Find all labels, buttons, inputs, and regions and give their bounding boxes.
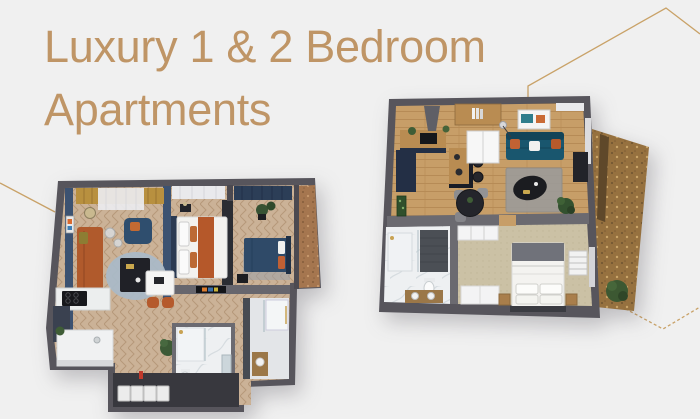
washing-machine-icon — [131, 386, 143, 401]
nightstand — [499, 294, 510, 305]
shower-room — [243, 298, 289, 379]
tv-unit — [573, 152, 588, 182]
floor-lamp-icon — [85, 208, 96, 219]
floorplan-one-bedroom — [379, 96, 649, 318]
washing-machine-icon — [118, 386, 130, 401]
balcony-terrace — [592, 129, 649, 311]
navy-curtains — [234, 186, 292, 200]
cork-balcony — [298, 185, 320, 288]
washing-machine-icon — [144, 386, 156, 401]
washing-machine-icon — [157, 386, 169, 401]
hexagon-outline-left — [0, 183, 55, 212]
sheer-curtains — [98, 188, 144, 210]
bar-stool-icon — [473, 172, 483, 182]
vanity — [405, 290, 443, 303]
orange-chair — [162, 297, 174, 308]
banner-artwork — [0, 0, 700, 419]
bedroom-door-opening — [499, 215, 516, 226]
floor-lamp-icon — [500, 122, 507, 129]
laundry-storage — [113, 371, 239, 407]
hero-banner: Luxury 1 & 2 BedroomApartments — [0, 0, 700, 419]
fire-extinguisher-icon — [139, 371, 143, 379]
window — [589, 247, 595, 287]
nightstand — [237, 274, 248, 283]
hexagon-outline-top-right — [528, 8, 700, 97]
orange-chair — [147, 297, 159, 308]
shower — [266, 300, 288, 330]
wardrobe — [458, 226, 498, 240]
floorplan-two-bedroom — [46, 178, 321, 412]
shower-feature-wall — [420, 230, 448, 272]
botanical-art-icon — [397, 196, 406, 216]
nightstand — [566, 294, 577, 305]
wall-art-icon — [66, 216, 74, 233]
